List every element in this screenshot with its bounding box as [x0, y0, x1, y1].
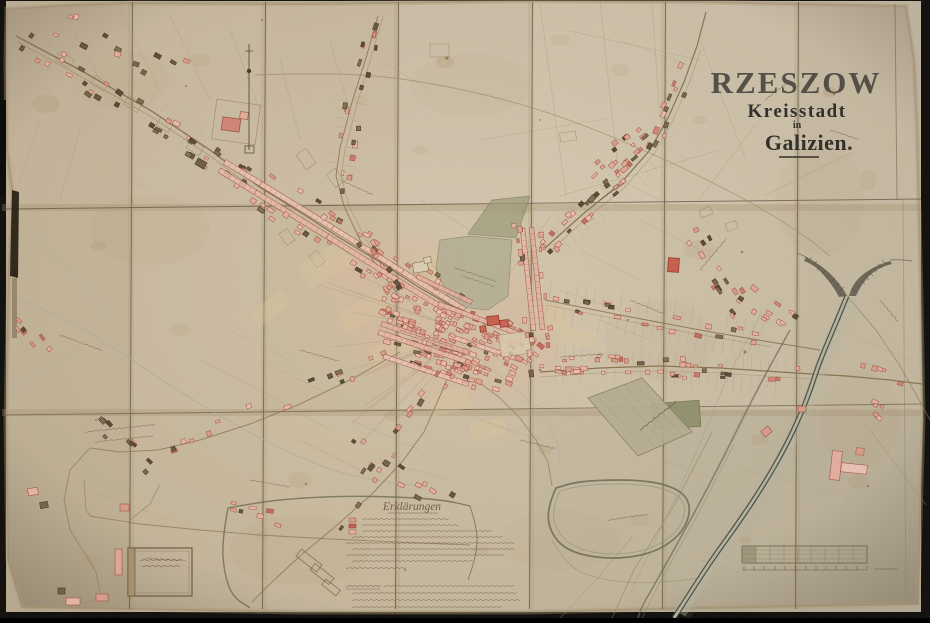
svg-text:Erklärungen: Erklärungen: [382, 501, 441, 513]
svg-text:RZESZOW: RZESZOW: [711, 65, 882, 100]
svg-text:Kreisstadt: Kreisstadt: [747, 101, 846, 122]
svg-text:Galizien.: Galizien.: [765, 130, 853, 155]
